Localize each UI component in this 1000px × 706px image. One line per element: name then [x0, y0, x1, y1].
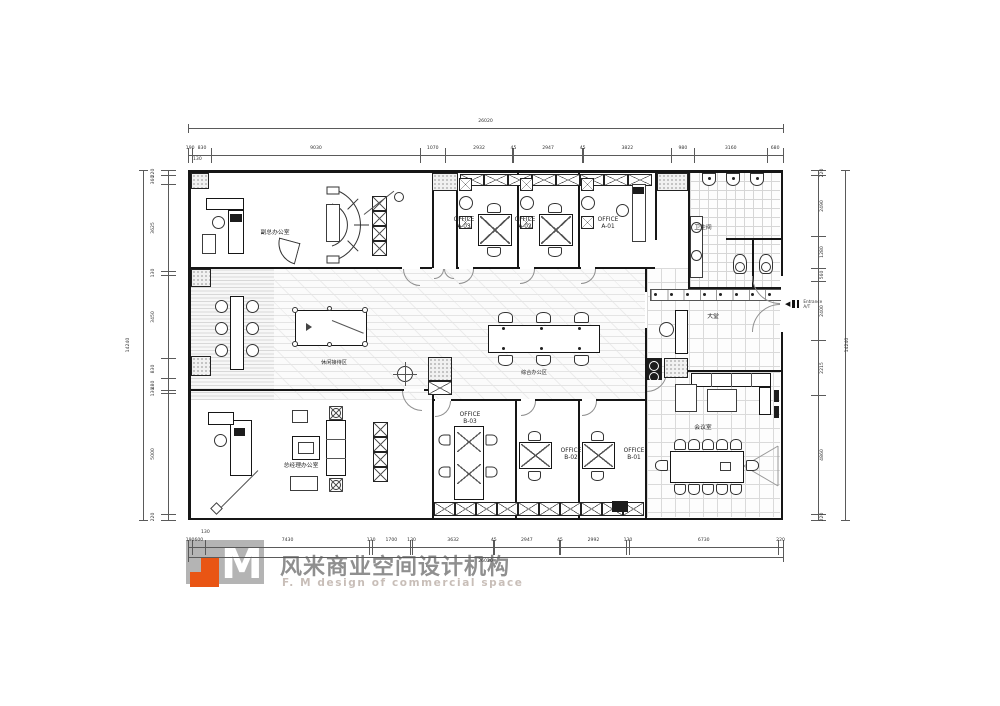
dim-label-bottom: 2947: [513, 539, 541, 545]
plan-column: [432, 173, 458, 191]
dim-total-line-top: [188, 128, 783, 129]
room-label-gm-office: 总经理办公室: [270, 463, 332, 470]
dim-label-left: 130: [152, 378, 158, 406]
plan-furniture: [292, 307, 298, 313]
plan-furniture: [759, 387, 771, 415]
plan-furniture: [688, 439, 700, 450]
plan-furniture: [541, 216, 571, 244]
room-label-office-a02: OFFICE A-02: [505, 217, 545, 231]
plan-cabinet: [476, 502, 497, 516]
dim-label-bottom: 600: [185, 539, 213, 545]
dim-label-right: 2215: [821, 354, 827, 382]
dim-tick-left: [161, 390, 176, 391]
plan-furniture: [708, 177, 711, 180]
dim-label-left: 130: [152, 259, 158, 287]
plan-furniture: [536, 355, 551, 366]
dim-tick-right: [811, 236, 826, 237]
plan-furniture: [702, 484, 714, 495]
plan-furniture: [674, 439, 686, 450]
dim-label-left: 3625: [152, 214, 158, 242]
plan-cabinet: [532, 174, 556, 186]
plan-furniture: [735, 262, 745, 272]
plan-furniture: [711, 373, 712, 387]
dim-label-top: 830: [188, 147, 216, 153]
dim-tick-right: [811, 395, 826, 396]
plan-furniture: [670, 451, 744, 483]
plan-furniture: [616, 204, 629, 217]
plan-furniture: [459, 196, 473, 210]
plan-cabinet: [484, 174, 508, 186]
room-label-restroom: 卫生间: [683, 225, 723, 232]
dim-label-top: 45: [499, 147, 527, 153]
room-label-deputy-office: 副总办公室: [245, 230, 305, 237]
plan-furniture: [202, 234, 216, 254]
dim-tick-top: [783, 124, 784, 133]
dim-label-top: 3160: [717, 147, 745, 153]
dim-line-left: [168, 170, 169, 520]
plan-furniture: [578, 327, 581, 330]
plan-cabinet: [539, 502, 560, 516]
dim-line-bottom: [188, 547, 783, 548]
plan-furniture: [732, 177, 735, 180]
plan-wall: [432, 399, 645, 401]
dim-label-bottom: 45: [480, 539, 508, 545]
plan-furniture: [649, 361, 659, 371]
dim-tick-left: [161, 514, 176, 515]
dim-tick-top: [188, 124, 189, 133]
plan-furniture: [274, 238, 301, 265]
dim-total-line-bottom: [188, 557, 783, 558]
dim-tick-right: [841, 520, 850, 521]
dim-label-top: 680: [761, 147, 789, 153]
dim-label-right: 220: [821, 503, 827, 531]
plan-furniture: [702, 439, 714, 450]
plan-cabinet: [373, 452, 388, 467]
plan-cabinet: [434, 502, 455, 516]
dim-tick-right: [841, 170, 850, 171]
plan-furniture: [751, 373, 752, 387]
plan-wall: [188, 170, 191, 520]
plan-furniture: [326, 439, 346, 440]
plan-furniture: [327, 306, 332, 311]
plan-door-arc: [234, 428, 245, 436]
plan-cabinet: [518, 502, 539, 516]
plan-wall: [726, 238, 781, 240]
dim-label-top: 9030: [302, 147, 330, 153]
dim-total-line-left: [143, 170, 144, 520]
plan-cabinet: [459, 178, 472, 191]
plan-furniture: [326, 458, 346, 459]
plan-furniture: [292, 410, 308, 423]
plan-furniture: [246, 322, 259, 335]
dim-extra-bottom-130: 130: [201, 530, 210, 535]
plan-furniture: [212, 216, 225, 229]
plan-furniture: [730, 484, 742, 495]
plan-furniture: [394, 192, 404, 202]
plan-furniture: [675, 310, 688, 354]
plan-column: [191, 356, 211, 376]
plan-furniture: [719, 293, 722, 296]
dim-tick-bottom: [188, 553, 189, 562]
plan-furniture: [670, 293, 673, 296]
plan-cabinet: [373, 437, 388, 452]
plan-furniture: [298, 442, 314, 454]
dim-label-top: 3822: [613, 147, 641, 153]
dim-label-bottom: 3632: [439, 539, 467, 545]
plan-cabinet: [497, 502, 518, 516]
plan-cabinet: [556, 174, 580, 186]
plan-door-arc: [774, 406, 779, 418]
dim-label-left: 220: [152, 503, 158, 531]
plan-furniture: [230, 296, 244, 370]
plan-furniture: [761, 262, 771, 272]
plan-furniture: [574, 312, 589, 323]
plan-wall: [188, 170, 783, 173]
dim-total-label-left: 14240: [127, 331, 133, 359]
plan-door-arc: [633, 187, 644, 194]
dim-label-left: 360: [152, 166, 158, 194]
plan-furniture: [405, 362, 406, 386]
plan-cabinet: [455, 502, 476, 516]
dim-label-bottom: 130: [398, 539, 426, 545]
plan-furniture: [686, 293, 689, 296]
dim-label-top: 1070: [419, 147, 447, 153]
plan-furniture: [208, 412, 234, 425]
plan-furniture: [675, 384, 697, 412]
logo-f-mark-top: [201, 558, 219, 572]
plan-cabinet: [581, 502, 602, 516]
plan-wall: [515, 401, 517, 518]
entrance-marker: ◀ EntranceA/T: [785, 299, 822, 309]
plan-furniture: [210, 502, 223, 515]
plan-furniture: [362, 341, 368, 347]
dim-tick-left: [139, 170, 148, 171]
plan-furniture: [591, 431, 604, 441]
dim-label-left: 5000: [152, 440, 158, 468]
plan-furniture: [486, 435, 498, 446]
plan-furniture: [730, 439, 742, 450]
plan-furniture: [246, 300, 259, 313]
floor-plan-page: { "dims": { "top": {"segments":[190,830,…: [0, 0, 1000, 706]
plan-furniture: [457, 464, 481, 484]
plan-furniture: [521, 444, 550, 467]
room-label-leisure: 休闲接待区: [306, 360, 362, 366]
plan-furniture: [703, 293, 706, 296]
plan-furniture: [720, 462, 731, 471]
dim-tick-left: [139, 520, 148, 521]
plan-furniture: [584, 444, 613, 467]
dim-label-bottom: 220: [767, 539, 795, 545]
plan-door-arc: [612, 501, 628, 512]
dim-label-bottom: 2992: [579, 539, 607, 545]
plan-furniture: [751, 293, 754, 296]
room-label-general-office: 综合办公区: [506, 370, 562, 376]
plan-cabinet: [560, 502, 581, 516]
plan-wall: [781, 170, 784, 520]
plan-door-arc: [521, 401, 536, 416]
plan-furniture: [540, 327, 543, 330]
dim-total-label-right: 14240: [846, 331, 852, 359]
plan-furniture: [746, 460, 759, 471]
plan-furniture: [457, 432, 481, 452]
plan-cabinet: [372, 226, 387, 241]
dim-label-right: 2490: [821, 192, 827, 220]
plan-wall-gap: [781, 276, 784, 332]
plan-furniture: [329, 406, 343, 420]
dim-tick-left: [161, 271, 176, 272]
dim-tick-left: [161, 184, 176, 185]
plan-furniture: [246, 344, 259, 357]
plan-furniture: [215, 344, 228, 357]
plan-furniture: [215, 300, 228, 313]
dim-tick-left: [161, 393, 176, 394]
plan-furniture: [520, 196, 534, 210]
plan-furniture: [498, 355, 513, 366]
plan-door-arc: [774, 390, 779, 402]
plan-wall-gap: [645, 292, 647, 328]
plan-wall: [645, 372, 647, 518]
plan-furniture: [674, 484, 686, 495]
dim-label-left: 3450: [152, 303, 158, 331]
plan-furniture: [659, 322, 674, 337]
plan-furniture: [688, 484, 700, 495]
floor-plan: 副总办公室 OFFICE A-03 OFFICE A-02 OFFICE A-0…: [188, 170, 783, 520]
plan-furniture: [654, 293, 657, 296]
plan-furniture: [735, 293, 738, 296]
dim-tick-left: [161, 175, 176, 176]
plan-furniture: [528, 431, 541, 441]
plan-furniture: [655, 460, 668, 471]
dim-label-right: 4860: [821, 441, 827, 469]
plan-furniture: [487, 247, 501, 257]
plan-furniture: [362, 307, 368, 313]
plan-wall: [188, 518, 783, 521]
plan-furniture: [327, 342, 332, 347]
room-label-office-a01: OFFICE A-01: [588, 217, 628, 231]
plan-furniture: [756, 177, 759, 180]
plan-furniture: [439, 467, 451, 478]
entrance-arrow-icon: ◀: [785, 301, 790, 308]
plan-furniture: [502, 347, 505, 350]
plan-furniture: [716, 439, 728, 450]
plan-furniture: [306, 323, 312, 331]
dim-tick-right: [811, 340, 826, 341]
dim-label-top: 980: [669, 147, 697, 153]
plan-door-arc: [435, 401, 451, 417]
plan-column: [664, 358, 688, 378]
plan-column: [191, 269, 211, 287]
dim-label-top: 45: [569, 147, 597, 153]
plan-wall: [188, 267, 432, 269]
plan-door-arc: [230, 214, 242, 222]
dim-label-bottom: 6730: [690, 539, 718, 545]
plan-cabinet: [604, 174, 628, 186]
plan-cabinet: [372, 211, 387, 226]
dim-tick-bottom: [783, 553, 784, 562]
plan-wall: [188, 389, 434, 391]
plan-furniture: [215, 322, 228, 335]
plan-furniture: [731, 373, 732, 387]
dim-label-right: 220: [821, 159, 827, 187]
plan-door-arc: [402, 391, 422, 411]
plan-furniture: [768, 293, 771, 296]
dim-line-right: [818, 170, 819, 520]
plan-furniture: [290, 476, 318, 491]
logo-m-letter: M: [221, 543, 263, 585]
plan-furniture: [214, 434, 227, 447]
plan-cabinet: [372, 241, 387, 256]
room-label-office-a03: OFFICE A-03: [444, 217, 484, 231]
plan-furniture: [329, 478, 343, 492]
plan-cabinet: [428, 381, 452, 395]
plan-furniture: [548, 247, 562, 257]
plan-furniture: [574, 355, 589, 366]
dim-label-bottom: 7430: [274, 539, 302, 545]
plan-furniture: [707, 389, 737, 412]
plan-column: [428, 357, 452, 381]
dim-label-bottom: 45: [546, 539, 574, 545]
room-label-lobby: 大堂: [698, 314, 728, 321]
plan-furniture: [536, 312, 551, 323]
plan-furniture: [487, 203, 501, 213]
plan-furniture: [578, 347, 581, 350]
plan-furniture: [649, 372, 659, 382]
plan-column: [191, 173, 209, 189]
plan-furniture: [540, 347, 543, 350]
plan-furniture: [326, 204, 340, 242]
dim-tick-left: [161, 358, 176, 359]
dim-total-label-top: 26020: [470, 120, 502, 126]
room-label-office-b02: OFFICE B-02: [554, 448, 588, 462]
plan-furniture: [591, 471, 604, 481]
entrance-bar-icon: [797, 300, 800, 308]
plan-cabinet: [373, 422, 388, 437]
dim-label-top: 2932: [465, 147, 493, 153]
plan-door-arc: [582, 401, 597, 416]
plan-furniture: [548, 203, 562, 213]
plan-furniture: [528, 471, 541, 481]
room-label-office-b01: OFFICE B-01: [617, 448, 651, 462]
plan-furniture: [206, 198, 244, 210]
plan-column: [657, 173, 688, 191]
plan-wall: [456, 267, 655, 269]
dim-extra-top-130: 130: [193, 157, 202, 162]
plan-furniture: [292, 341, 298, 347]
room-label-office-b03: OFFICE B-03: [450, 412, 490, 426]
dim-tick-left: [161, 378, 176, 379]
plan-furniture: [439, 435, 451, 446]
dim-tick-left: [161, 170, 176, 171]
plan-furniture: [486, 467, 498, 478]
dim-tick-left: [161, 275, 176, 276]
plan-furniture: [502, 327, 505, 330]
dim-label-bottom: 130: [614, 539, 642, 545]
logo-f-mark-bottom: [190, 572, 219, 587]
plan-furniture: [716, 484, 728, 495]
plan-cabinet: [373, 467, 388, 482]
room-label-meeting: 会议室: [686, 425, 720, 432]
dim-tick-left: [161, 520, 176, 521]
entrance-bar-icon: [792, 300, 795, 308]
dim-label-right: 560: [821, 261, 827, 289]
plan-furniture: [581, 196, 595, 210]
logo-tagline: F. M design of commercial space: [282, 577, 524, 589]
plan-furniture: [498, 312, 513, 323]
entrance-label: EntranceA/T: [803, 299, 822, 309]
arc-sofa: [314, 186, 376, 264]
dim-label-top: 2947: [534, 147, 562, 153]
plan-furniture: [691, 250, 702, 261]
plan-wall: [432, 391, 434, 518]
dim-total-label-bottom: 26020: [470, 560, 502, 566]
plan-cabinet: [520, 178, 533, 191]
plan-cabinet: [581, 178, 594, 191]
